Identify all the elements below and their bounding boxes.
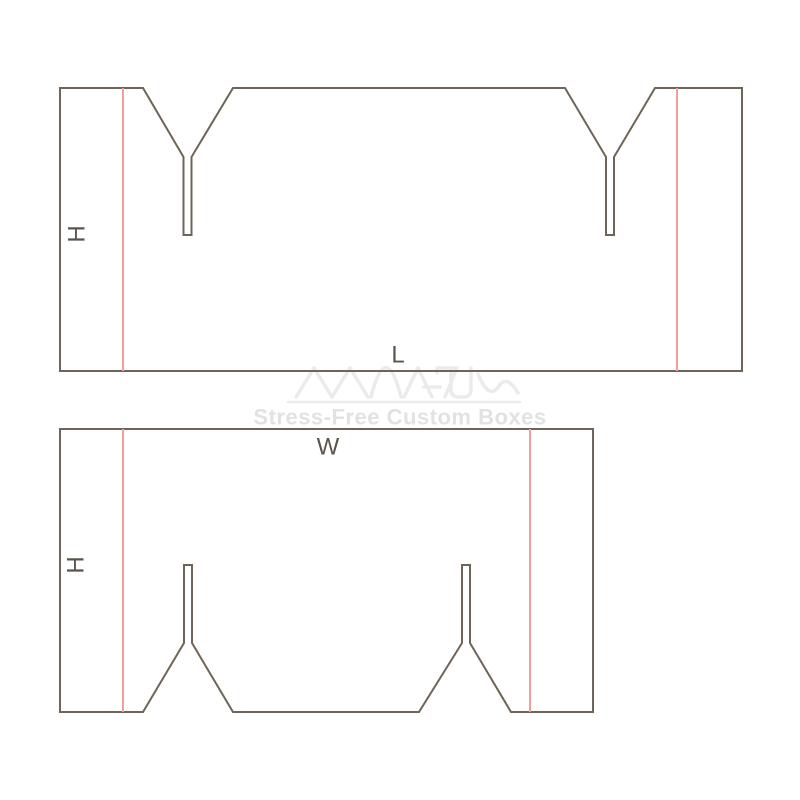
length-panel-cut-outline bbox=[60, 88, 742, 371]
dimension-label-h: H bbox=[64, 225, 91, 242]
dieline-panels: HLHW bbox=[60, 88, 742, 712]
dimension-label-w: W bbox=[317, 434, 340, 461]
dimension-label-l: L bbox=[391, 342, 404, 369]
watermark-tagline: Stress-Free Custom Boxes bbox=[253, 405, 546, 430]
dieline-canvas: Stress-Free Custom Boxes HLHW bbox=[0, 0, 800, 800]
dimension-label-h: H bbox=[63, 556, 90, 573]
width-panel-cut-outline bbox=[60, 429, 593, 712]
dieline-diagram: Stress-Free Custom Boxes HLHW bbox=[0, 0, 800, 800]
watermark: Stress-Free Custom Boxes bbox=[253, 368, 546, 430]
